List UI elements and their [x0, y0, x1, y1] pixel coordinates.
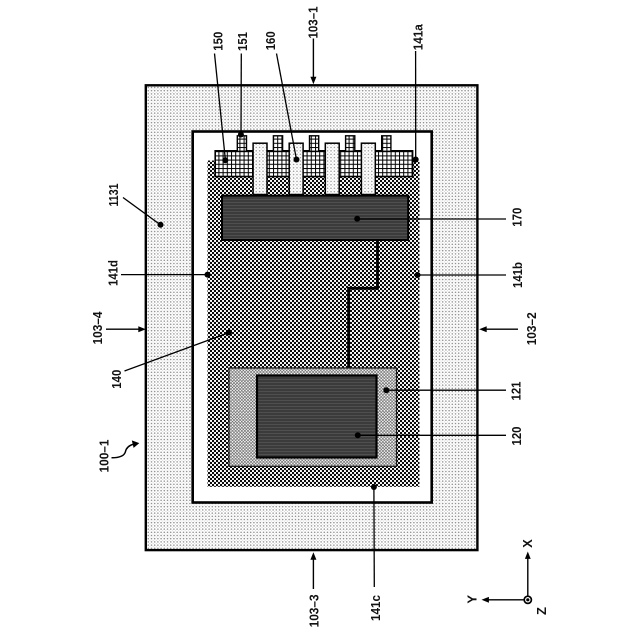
svg-text:121: 121	[509, 382, 524, 401]
svg-text:141c: 141c	[368, 595, 383, 621]
svg-text:151: 151	[235, 32, 250, 51]
svg-text:Z: Z	[534, 607, 549, 615]
svg-text:1131: 1131	[106, 184, 121, 207]
svg-text:141b: 141b	[510, 262, 525, 288]
svg-text:103–3: 103–3	[307, 594, 322, 627]
svg-text:103–1: 103–1	[305, 7, 320, 39]
svg-text:140: 140	[109, 370, 124, 389]
svg-text:103–4: 103–4	[90, 311, 105, 345]
svg-text:100–1: 100–1	[96, 440, 111, 473]
svg-text:103–2: 103–2	[524, 312, 539, 345]
svg-text:170: 170	[510, 208, 525, 227]
svg-text:120: 120	[509, 427, 524, 446]
svg-text:Y: Y	[464, 595, 479, 604]
svg-text:141d: 141d	[105, 260, 120, 286]
svg-text:160: 160	[263, 31, 278, 50]
svg-text:141a: 141a	[411, 24, 426, 51]
svg-text:X: X	[520, 539, 535, 548]
svg-text:150: 150	[210, 32, 225, 51]
